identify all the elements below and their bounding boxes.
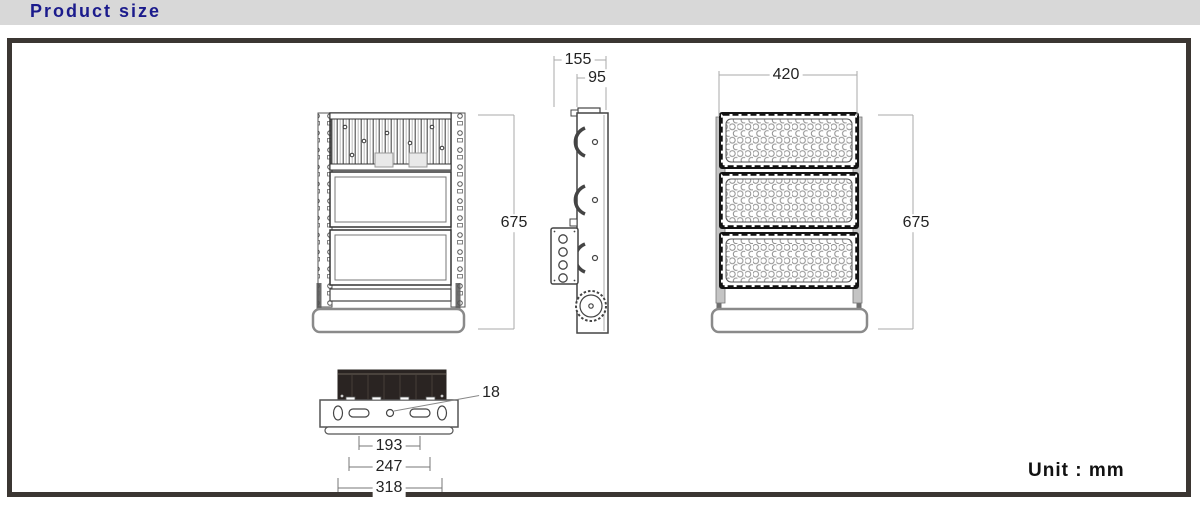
fin-notch <box>375 153 393 167</box>
heatsink-dot <box>341 395 344 398</box>
dim-label-back-height: 675 <box>498 214 531 232</box>
front-view-drawing <box>712 113 867 332</box>
drawing-frame: 155 95 420 675 675 18 193 247 318 Unit :… <box>7 38 1191 497</box>
module-panel-inner <box>335 235 446 280</box>
fin-notch <box>409 153 427 167</box>
side-rail <box>451 113 465 307</box>
dim-label-front-height: 675 <box>900 214 933 232</box>
side-lug <box>570 219 577 226</box>
page-title: Product size <box>30 1 161 22</box>
dim-label-side-total: 155 <box>562 51 595 69</box>
module-panel-inner <box>335 177 446 222</box>
bottom-cap <box>330 289 451 301</box>
fin-cap <box>330 113 451 119</box>
adjustment-knob <box>576 291 606 321</box>
plate-lip <box>325 427 453 434</box>
bracket-bar <box>712 309 867 332</box>
page-header: Product size <box>0 0 1200 25</box>
dim-label-span-middle: 247 <box>373 458 406 476</box>
dim-label-span-outer: 318 <box>373 479 406 497</box>
dim-label-side-body: 95 <box>585 69 609 87</box>
back-view-drawing <box>313 113 465 332</box>
unit-label: Unit : mm <box>1028 460 1125 482</box>
heatsink-dot <box>441 395 444 398</box>
led-modules <box>720 113 858 288</box>
technical-drawing <box>12 43 1186 492</box>
bracket-bar <box>313 309 464 332</box>
dim-label-front-width: 420 <box>770 66 803 84</box>
side-view-drawing <box>551 108 608 333</box>
dim-label-span-inner: 193 <box>373 437 406 455</box>
dim-label-mount-hole: 18 <box>479 384 503 402</box>
